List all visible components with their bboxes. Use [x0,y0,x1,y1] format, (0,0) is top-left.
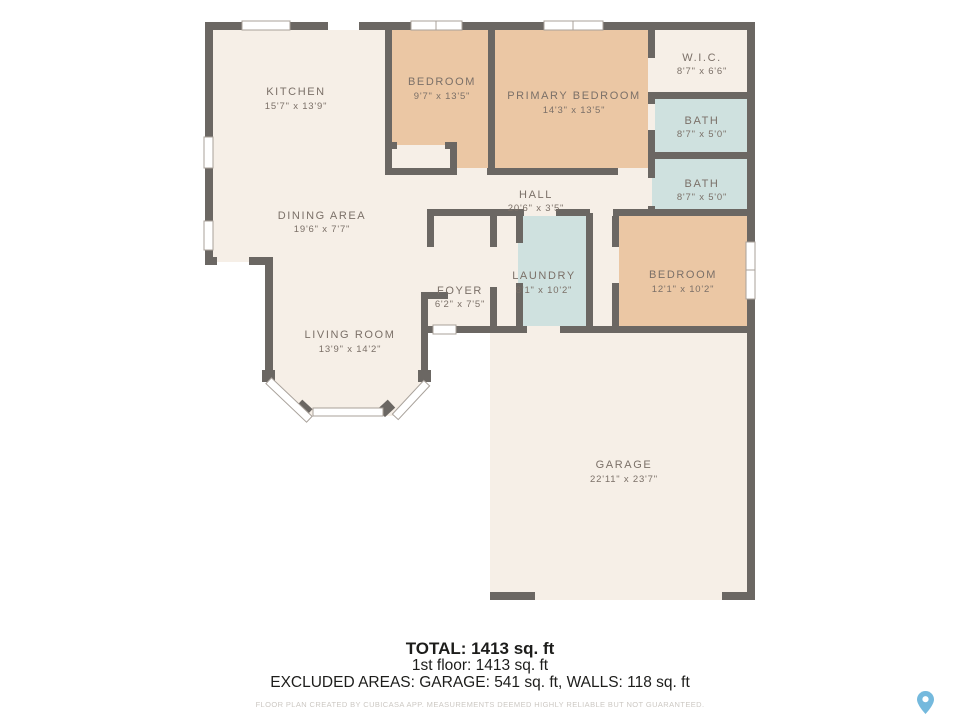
laundry-dims: 8'1" x 10'2" [516,285,572,296]
floor-plan-drawing: KITCHEN 15'7" x 13'9" BEDROOM 9'7" x 13'… [0,0,960,720]
wic-dims: 8'7" x 6'6" [677,66,727,77]
floor-plan-page: KITCHEN 15'7" x 13'9" BEDROOM 9'7" x 13'… [0,0,960,720]
hall-label: HALL [519,189,553,201]
garage-dims: 22'11" x 23'7" [590,474,658,485]
bath-2-label: BATH [685,178,720,190]
kitchen-left-window-upper [204,137,213,168]
total-area-text: TOTAL: 1413 sq. ft [0,640,960,657]
foyer-dims: 6'2" x 7'5" [435,299,485,310]
bedroom-right-dims: 12'1" x 10'2" [652,284,715,295]
kitchen-window [242,21,290,30]
foyer-label: FOYER [437,285,483,297]
dining-area-label: DINING AREA [278,210,367,222]
living-room-dims: 13'9" x 14'2" [319,344,382,355]
bay-window-bottom [313,408,383,416]
living-room-label: LIVING ROOM [305,329,396,341]
primary-bedroom-label: PRIMARY BEDROOM [507,90,641,102]
kitchen-left-window-lower [204,221,213,250]
hall-dims: 20'6" x 3'5" [508,203,564,214]
bath-1-dims: 8'7" x 5'0" [677,129,727,140]
kitchen-label: KITCHEN [266,86,325,98]
bedroom-top-label: BEDROOM [408,76,476,88]
area-summary: TOTAL: 1413 sq. ft 1st floor: 1413 sq. f… [0,640,960,709]
location-pin-icon [917,691,934,714]
bath-1-label: BATH [685,115,720,127]
excluded-areas-text: EXCLUDED AREAS: GARAGE: 541 sq. ft, WALL… [0,675,960,691]
dining-area-dims: 19'6" x 7'7" [294,224,350,235]
primary-bedroom-dims: 14'3" x 13'5" [543,105,606,116]
laundry-label: LAUNDRY [512,270,576,282]
bedroom-right-label: BEDROOM [649,269,717,281]
bedroom-top-dims: 9'7" x 13'5" [414,91,470,102]
kitchen-dims: 15'7" x 13'9" [265,101,328,112]
garage-label: GARAGE [596,459,653,471]
wic-label: W.I.C. [682,52,722,64]
top-wall-opening [328,22,359,30]
bath-2-dims: 8'7" x 5'0" [677,192,727,203]
disclaimer-text: FLOOR PLAN CREATED BY CUBICASA APP. MEAS… [0,700,960,709]
foyer-front-window [433,325,456,334]
first-floor-text: 1st floor: 1413 sq. ft [0,658,960,674]
